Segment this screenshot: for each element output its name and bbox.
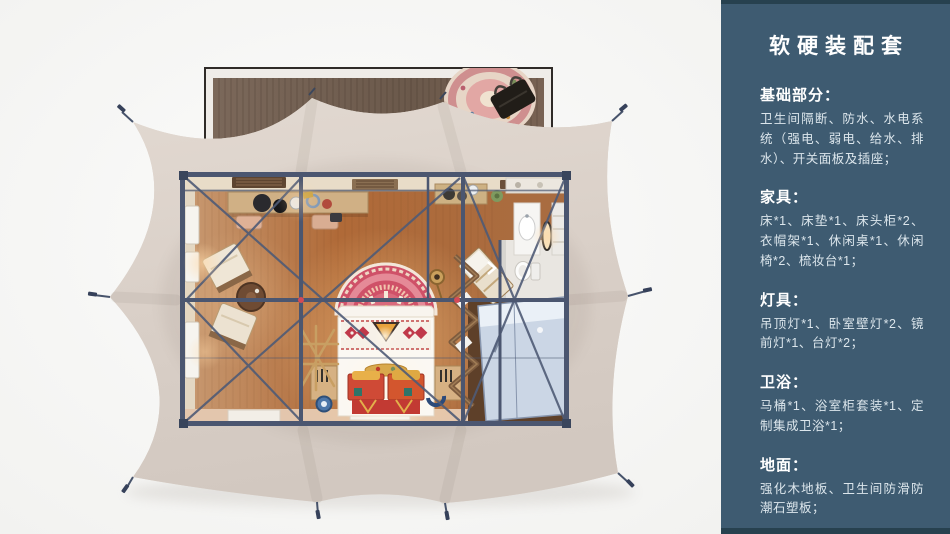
ceiling-lamp [375, 326, 395, 346]
floorplan-illustration [0, 0, 721, 534]
info-sidebar: 软硬装配套 基础部分： 卫生间隔断、防水、水电系统（强电、弱电、给水、排水）、开… [721, 0, 950, 534]
section-furniture: 家具： 床*1、床垫*1、床头柜*2、衣帽架*1、休闲桌*1、休闲椅*2、梳妆台… [760, 186, 924, 271]
section-heading: 地面： [760, 454, 924, 475]
section-body: 卫生间隔断、防水、水电系统（强电、弱电、给水、排水）、开关面板及插座； [760, 110, 924, 169]
page: 软硬装配套 基础部分： 卫生间隔断、防水、水电系统（强电、弱电、给水、排水）、开… [0, 0, 950, 534]
section-heading: 卫浴： [760, 371, 924, 392]
section-heading: 家具： [760, 186, 924, 207]
sidebar-sections: 基础部分： 卫生间隔断、防水、水电系统（强电、弱电、给水、排水）、开关面板及插座… [721, 84, 950, 519]
section-body: 吊顶灯*1、卧室壁灯*2、镜前灯*1、台灯*2； [760, 315, 924, 355]
section-body: 强化木地板、卫生间防滑防潮石塑板； [760, 480, 924, 520]
section-basics: 基础部分： 卫生间隔断、防水、水电系统（强电、弱电、给水、排水）、开关面板及插座… [760, 84, 924, 169]
section-lighting: 灯具： 吊顶灯*1、卧室壁灯*2、镜前灯*1、台灯*2； [760, 289, 924, 355]
sidebar-title: 软硬装配套 [721, 30, 950, 60]
section-heading: 基础部分： [760, 84, 924, 105]
section-body: 床*1、床垫*1、床头柜*2、衣帽架*1、休闲桌*1、休闲椅*2、梳妆台*1； [760, 212, 924, 271]
section-heading: 灯具： [760, 289, 924, 310]
section-bathroom: 卫浴： 马桶*1、浴室柜套装*1、定制集成卫浴*1； [760, 371, 924, 437]
floorplan-panel [0, 0, 721, 534]
section-flooring: 地面： 强化木地板、卫生间防滑防潮石塑板； [760, 454, 924, 520]
leisure-round-table [237, 283, 265, 311]
shower-enclosure [478, 297, 569, 421]
section-body: 马桶*1、浴室柜套装*1、定制集成卫浴*1； [760, 397, 924, 437]
